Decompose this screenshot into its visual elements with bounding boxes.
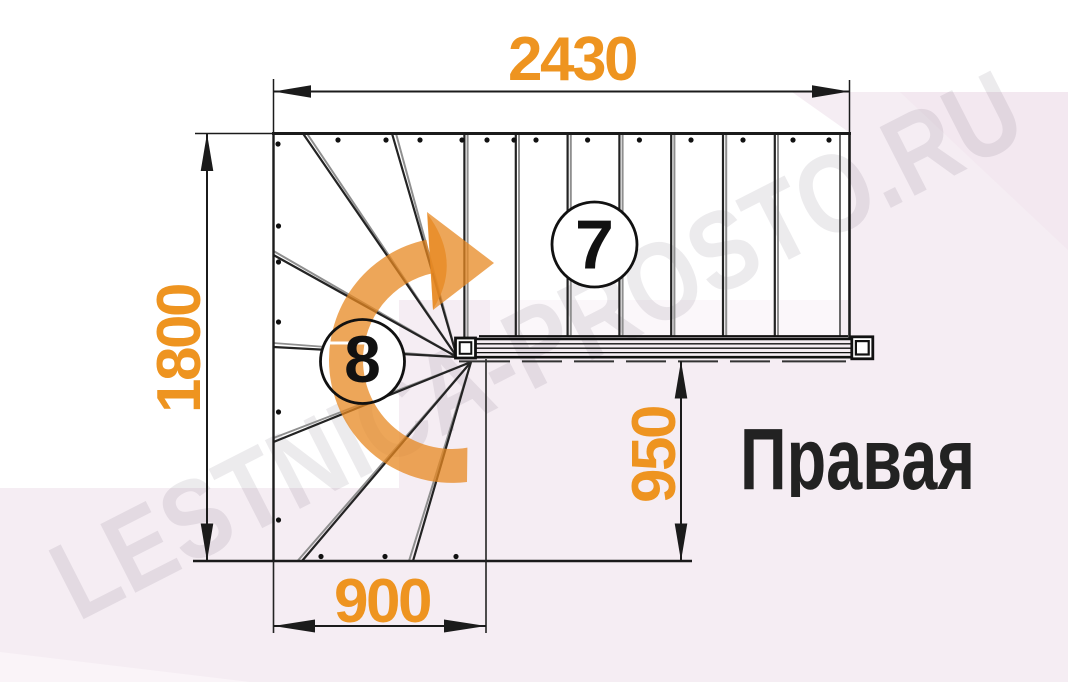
svg-text:8: 8 (344, 322, 381, 396)
svg-text:7: 7 (575, 206, 614, 284)
svg-text:950: 950 (620, 407, 689, 503)
svg-text:1800: 1800 (145, 285, 214, 413)
svg-text:Правая: Правая (740, 412, 975, 508)
svg-text:900: 900 (334, 567, 430, 636)
svg-text:2430: 2430 (508, 25, 636, 94)
